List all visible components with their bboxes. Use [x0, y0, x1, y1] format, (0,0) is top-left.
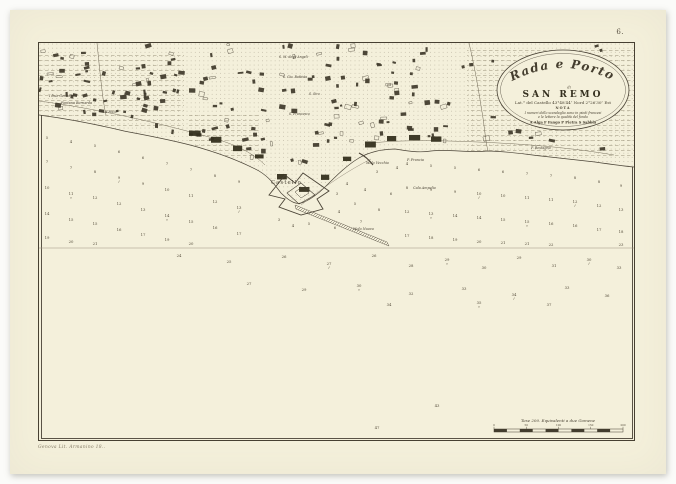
- building: [279, 104, 286, 109]
- depth-sounding: 15: [93, 221, 98, 226]
- building: [356, 83, 358, 87]
- bottom-quality-letter: s: [358, 288, 360, 292]
- depth-sounding: 11: [525, 195, 530, 200]
- building: [155, 123, 158, 128]
- place-label: La Foce: [102, 110, 116, 114]
- building: [40, 76, 44, 80]
- building: [412, 92, 415, 96]
- building: [291, 88, 296, 93]
- depth-sounding: 8: [214, 173, 217, 178]
- depth-sounding: 5: [354, 201, 357, 206]
- building: [408, 128, 414, 131]
- depth-sounding: 6: [334, 225, 337, 230]
- depth-sounding: 4: [338, 209, 341, 214]
- depth-sounding: 19: [453, 237, 458, 242]
- depth-sounding: 15: [69, 217, 74, 222]
- building: [328, 122, 332, 126]
- depth-sounding: 13: [619, 207, 624, 212]
- depth-sounding: 24: [177, 253, 182, 258]
- depth-sounding: 14: [45, 211, 50, 216]
- depth-sounding: 8: [94, 169, 97, 174]
- depth-sounding: 8: [598, 179, 601, 184]
- building: [85, 70, 88, 72]
- building: [515, 129, 521, 134]
- building: [160, 99, 165, 103]
- scale-bar: Tese 200. Equivalenti a due Gomene 05010…: [493, 418, 626, 432]
- building: [144, 93, 147, 98]
- depth-sounding: 6: [142, 155, 145, 160]
- depth-sounding: 33: [462, 286, 467, 291]
- depth-sounding: 5: [46, 135, 49, 140]
- depth-sounding: 12: [117, 201, 122, 206]
- place-label: Molo Vecchio: [365, 161, 389, 165]
- building: [336, 84, 339, 88]
- place-label: Molo Nuovo: [352, 227, 374, 231]
- waterfront-building: [365, 142, 376, 148]
- building: [141, 64, 145, 69]
- depth-sounding: 10: [45, 185, 50, 190]
- plate-number: 6.: [616, 28, 624, 36]
- depth-sounding: 7: [526, 171, 529, 176]
- depth-sounding: 6: [118, 149, 121, 154]
- depth-sounding: 22: [549, 242, 554, 247]
- scale-bar-segment: [520, 429, 533, 432]
- building: [85, 62, 89, 66]
- waterfront-building: [255, 154, 264, 158]
- waterfront-building: [233, 146, 242, 152]
- scale-bar-segment: [546, 429, 559, 432]
- depth-soundings-layer: 571014194711s15205812152169f121669131771…: [45, 135, 624, 430]
- building: [389, 96, 394, 100]
- cartouche-nota-heading: NOTA: [555, 106, 570, 110]
- bottom-quality-letter: f: [327, 266, 330, 270]
- depth-sounding: 5: [430, 163, 433, 168]
- depth-sounding: 11: [549, 197, 554, 202]
- depth-sounding: 12: [213, 199, 218, 204]
- depth-sounding: 4: [346, 181, 349, 186]
- place-label: I Due Gemelli: [48, 94, 73, 98]
- bottom-quality-letter: f: [573, 204, 576, 208]
- depth-sounding: 12: [93, 195, 98, 200]
- place-label: S. M. degli Angeli: [279, 55, 308, 59]
- depth-sounding: 11: [189, 193, 194, 198]
- building: [60, 57, 64, 60]
- depth-sounding: 6: [390, 191, 393, 196]
- bottom-quality-letter: s: [430, 216, 432, 220]
- depth-sounding: 5: [308, 221, 311, 226]
- depth-sounding: 18: [619, 229, 624, 234]
- building: [120, 95, 127, 100]
- depth-sounding: 23: [619, 242, 624, 247]
- depth-sounding: 10: [165, 187, 170, 192]
- depth-sounding: 3: [278, 217, 281, 222]
- building: [153, 106, 158, 111]
- cartouche-latitude: Lat.° del Castello 43°48′44″ Nord 2°26′3…: [515, 100, 612, 105]
- building: [443, 125, 448, 127]
- depth-sounding: 26: [282, 254, 287, 259]
- depth-sounding: 7: [166, 161, 169, 166]
- building: [313, 143, 319, 147]
- building: [410, 72, 413, 75]
- title-cartouche: Rada e Porto di SAN REMO Lat.° del Caste…: [497, 50, 629, 130]
- waterfront-building: [431, 136, 441, 141]
- depth-sounding: 4: [292, 223, 295, 228]
- depth-sounding: 28: [409, 263, 414, 268]
- depth-sounding: 34: [387, 302, 392, 307]
- scale-tick-label: 200: [620, 423, 626, 427]
- bottom-quality-letter: f: [237, 210, 240, 214]
- depth-sounding: 20: [69, 239, 74, 244]
- building: [424, 100, 430, 105]
- depth-sounding: 7: [70, 165, 73, 170]
- place-label: S. Siro: [309, 92, 320, 96]
- building: [136, 67, 140, 69]
- nautical-chart-san-remo: Rada e Porto di SAN REMO Lat.° del Caste…: [39, 43, 634, 440]
- depth-sounding: 27: [247, 281, 252, 286]
- depth-sounding: 26: [372, 253, 377, 258]
- building: [434, 127, 438, 132]
- depth-sounding: 19: [45, 235, 50, 240]
- building: [508, 130, 513, 134]
- depth-sounding: 15: [189, 219, 194, 224]
- place-label: S. Francesco: [289, 112, 310, 116]
- depth-sounding: 13: [141, 207, 146, 212]
- depth-sounding: 5: [94, 143, 97, 148]
- building: [251, 127, 256, 131]
- depth-sounding: 18: [429, 235, 434, 240]
- building: [401, 112, 407, 116]
- depth-sounding: 17: [597, 227, 602, 232]
- building: [253, 133, 257, 137]
- place-label: P. Bestagno: [530, 146, 551, 150]
- depth-sounding: 7: [46, 159, 49, 164]
- depth-sounding: 4: [396, 165, 399, 170]
- waterfront-building: [409, 135, 420, 140]
- depth-sounding: 7: [550, 173, 553, 178]
- building: [412, 59, 415, 63]
- depth-sounding: 19: [165, 237, 170, 242]
- cartouche-nota-line2: e le lettere la qualità del fondo: [538, 115, 588, 119]
- place-label: S. Gio. Battista: [283, 75, 307, 79]
- depth-sounding: 4: [364, 187, 367, 192]
- depth-sounding: 17: [405, 233, 410, 238]
- building: [189, 88, 195, 92]
- building: [336, 57, 339, 61]
- depth-sounding: 15: [501, 217, 506, 222]
- building: [386, 121, 389, 123]
- bottom-quality-letter: f: [512, 297, 515, 301]
- depth-sounding: 9: [620, 183, 623, 188]
- depth-sounding: 7: [360, 219, 363, 224]
- depth-sounding: 32: [409, 291, 414, 296]
- depth-sounding: 6: [478, 167, 481, 172]
- building: [219, 102, 222, 104]
- depth-sounding: 3: [376, 169, 379, 174]
- depth-sounding: 33: [565, 285, 570, 290]
- building: [202, 129, 206, 133]
- building: [341, 76, 346, 80]
- waterfront-building: [211, 137, 221, 143]
- building: [363, 51, 368, 56]
- building: [81, 52, 86, 54]
- depth-sounding: 8: [406, 185, 409, 190]
- building: [92, 113, 96, 117]
- depth-sounding: 29: [302, 287, 307, 292]
- depth-sounding: 20: [189, 241, 194, 246]
- bottom-quality-letter: f: [117, 180, 120, 184]
- building: [420, 52, 426, 55]
- building: [260, 72, 265, 75]
- cartouche-san-remo: SAN REMO: [523, 90, 604, 100]
- building: [434, 100, 439, 104]
- depth-sounding: 16: [117, 227, 122, 232]
- bottom-quality-letter: s: [446, 262, 448, 266]
- building: [380, 131, 384, 136]
- depth-sounding: 29: [517, 255, 522, 260]
- waterfront-building: [321, 175, 329, 180]
- depth-sounding: 5: [454, 165, 457, 170]
- depth-sounding: 33: [617, 265, 622, 270]
- waterfront-building: [189, 131, 201, 136]
- building: [431, 133, 434, 136]
- depth-sounding: 9: [238, 179, 241, 184]
- lithographer-imprint: Genova Lit. Armanino 18..: [38, 445, 105, 450]
- depth-sounding: 21: [93, 241, 98, 246]
- depth-sounding: 30: [482, 265, 487, 270]
- depth-sounding: 8: [574, 175, 577, 180]
- building: [327, 139, 330, 143]
- depth-sounding: 3: [336, 191, 339, 196]
- place-label: P. Francia: [406, 158, 424, 162]
- building: [334, 137, 337, 139]
- building: [59, 69, 65, 73]
- building: [469, 63, 473, 67]
- bottom-quality-letter: s: [478, 305, 480, 309]
- cartouche-bottom-legend: A Alga F Fango P Pietra S Sabbia: [529, 121, 597, 125]
- depth-sounding: 14: [453, 213, 458, 218]
- place-label: Fontana Bernarda: [60, 101, 92, 105]
- building: [391, 71, 394, 74]
- chart-sheet: 6.: [10, 10, 666, 474]
- building: [377, 64, 382, 66]
- building: [261, 149, 266, 154]
- depth-sounding: 16: [549, 221, 554, 226]
- bottom-quality-letter: s: [166, 218, 168, 222]
- depth-sounding: 37: [547, 302, 552, 307]
- depth-sounding: 7: [190, 167, 193, 172]
- building: [428, 135, 431, 137]
- depth-sounding: 9: [454, 189, 457, 194]
- place-label: Cala Ampelio: [413, 186, 436, 190]
- scale-bar-segment: [571, 429, 584, 432]
- map-frame: Rada e Porto di SAN REMO Lat.° del Caste…: [38, 42, 635, 441]
- depth-sounding: 17: [141, 232, 146, 237]
- scale-bar-segment: [597, 429, 610, 432]
- scale-tick-label: 100: [556, 423, 562, 427]
- building: [411, 85, 418, 89]
- building: [167, 61, 171, 65]
- depth-sounding: 8: [378, 207, 381, 212]
- scale-tick-label: 0: [493, 423, 495, 427]
- building: [379, 119, 384, 123]
- depth-sounding: 31: [552, 263, 557, 268]
- depth-sounding: 20: [477, 239, 482, 244]
- building: [394, 81, 398, 85]
- building: [123, 111, 126, 114]
- building: [93, 98, 97, 101]
- depth-sounding: 4: [70, 139, 73, 144]
- depth-sounding: 16: [573, 223, 578, 228]
- depth-sounding: 36: [605, 293, 610, 298]
- bottom-quality-letter: f: [477, 196, 480, 200]
- bottom-quality-letter: f: [587, 262, 590, 266]
- depth-sounding: 16: [213, 225, 218, 230]
- bottom-quality-letter: s: [526, 224, 528, 228]
- depth-sounding: 12: [597, 203, 602, 208]
- depth-sounding: 17: [237, 231, 242, 236]
- depth-sounding: 43: [435, 403, 440, 408]
- depth-sounding: 6: [502, 169, 505, 174]
- depth-sounding: 9: [142, 181, 145, 186]
- scale-bar-segment: [494, 429, 507, 432]
- building: [491, 116, 496, 118]
- waterfront-building: [387, 136, 396, 141]
- depth-sounding: 10: [501, 193, 506, 198]
- building: [491, 60, 494, 63]
- building: [600, 147, 606, 151]
- bottom-quality-letter: s: [70, 196, 72, 200]
- depth-sounding: 47: [375, 425, 380, 430]
- building: [334, 107, 338, 110]
- depth-sounding: 21: [501, 240, 506, 245]
- depth-sounding: 25: [227, 259, 232, 264]
- building: [425, 47, 427, 52]
- building: [252, 79, 255, 83]
- cartouche-di: di: [567, 86, 570, 90]
- depth-sounding: 21: [525, 241, 530, 246]
- building: [246, 147, 251, 150]
- building: [213, 105, 217, 107]
- scale-tick-label: 150: [588, 423, 594, 427]
- building: [308, 78, 313, 81]
- building: [178, 71, 185, 75]
- depth-sounding: 14: [477, 215, 482, 220]
- depth-sounding: 12: [405, 209, 410, 214]
- scale-tick-label: 50: [524, 423, 528, 427]
- waterfront-building: [343, 157, 351, 161]
- place-label: Castello: [271, 180, 302, 186]
- building: [529, 136, 534, 138]
